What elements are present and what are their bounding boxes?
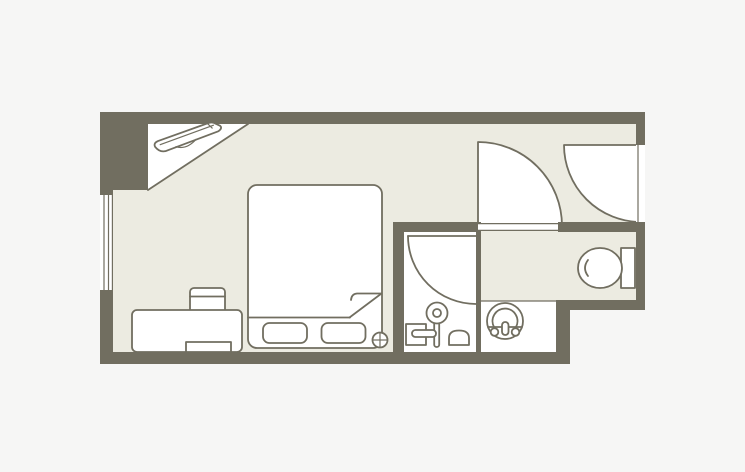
toilet-icon <box>578 248 635 288</box>
double-bed <box>248 185 382 348</box>
entrance-opening <box>636 145 645 222</box>
floor-plan-page <box>0 0 745 472</box>
floor-plan-canvas <box>0 0 745 472</box>
pillow-left <box>263 323 307 343</box>
wash-bowl <box>449 331 469 346</box>
under-desk-stool <box>186 342 231 352</box>
window <box>100 195 113 290</box>
pillow-right <box>322 323 366 343</box>
outlet-symbol <box>373 333 388 348</box>
room-door-threshold <box>478 223 558 231</box>
washbasin-icon <box>487 303 523 339</box>
